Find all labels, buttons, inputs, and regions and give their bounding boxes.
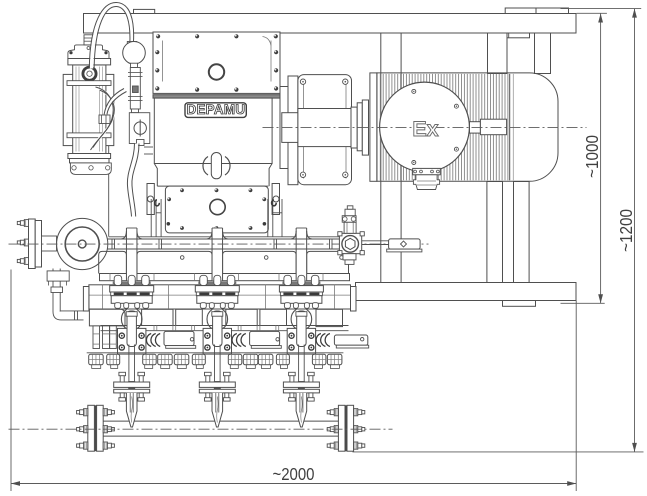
svg-text:Ex: Ex — [412, 117, 438, 141]
svg-text:~1200: ~1200 — [616, 209, 636, 252]
svg-text:DEPAMU: DEPAMU — [186, 102, 245, 117]
svg-text:~1000: ~1000 — [582, 135, 602, 178]
svg-text:~2000: ~2000 — [273, 464, 315, 484]
